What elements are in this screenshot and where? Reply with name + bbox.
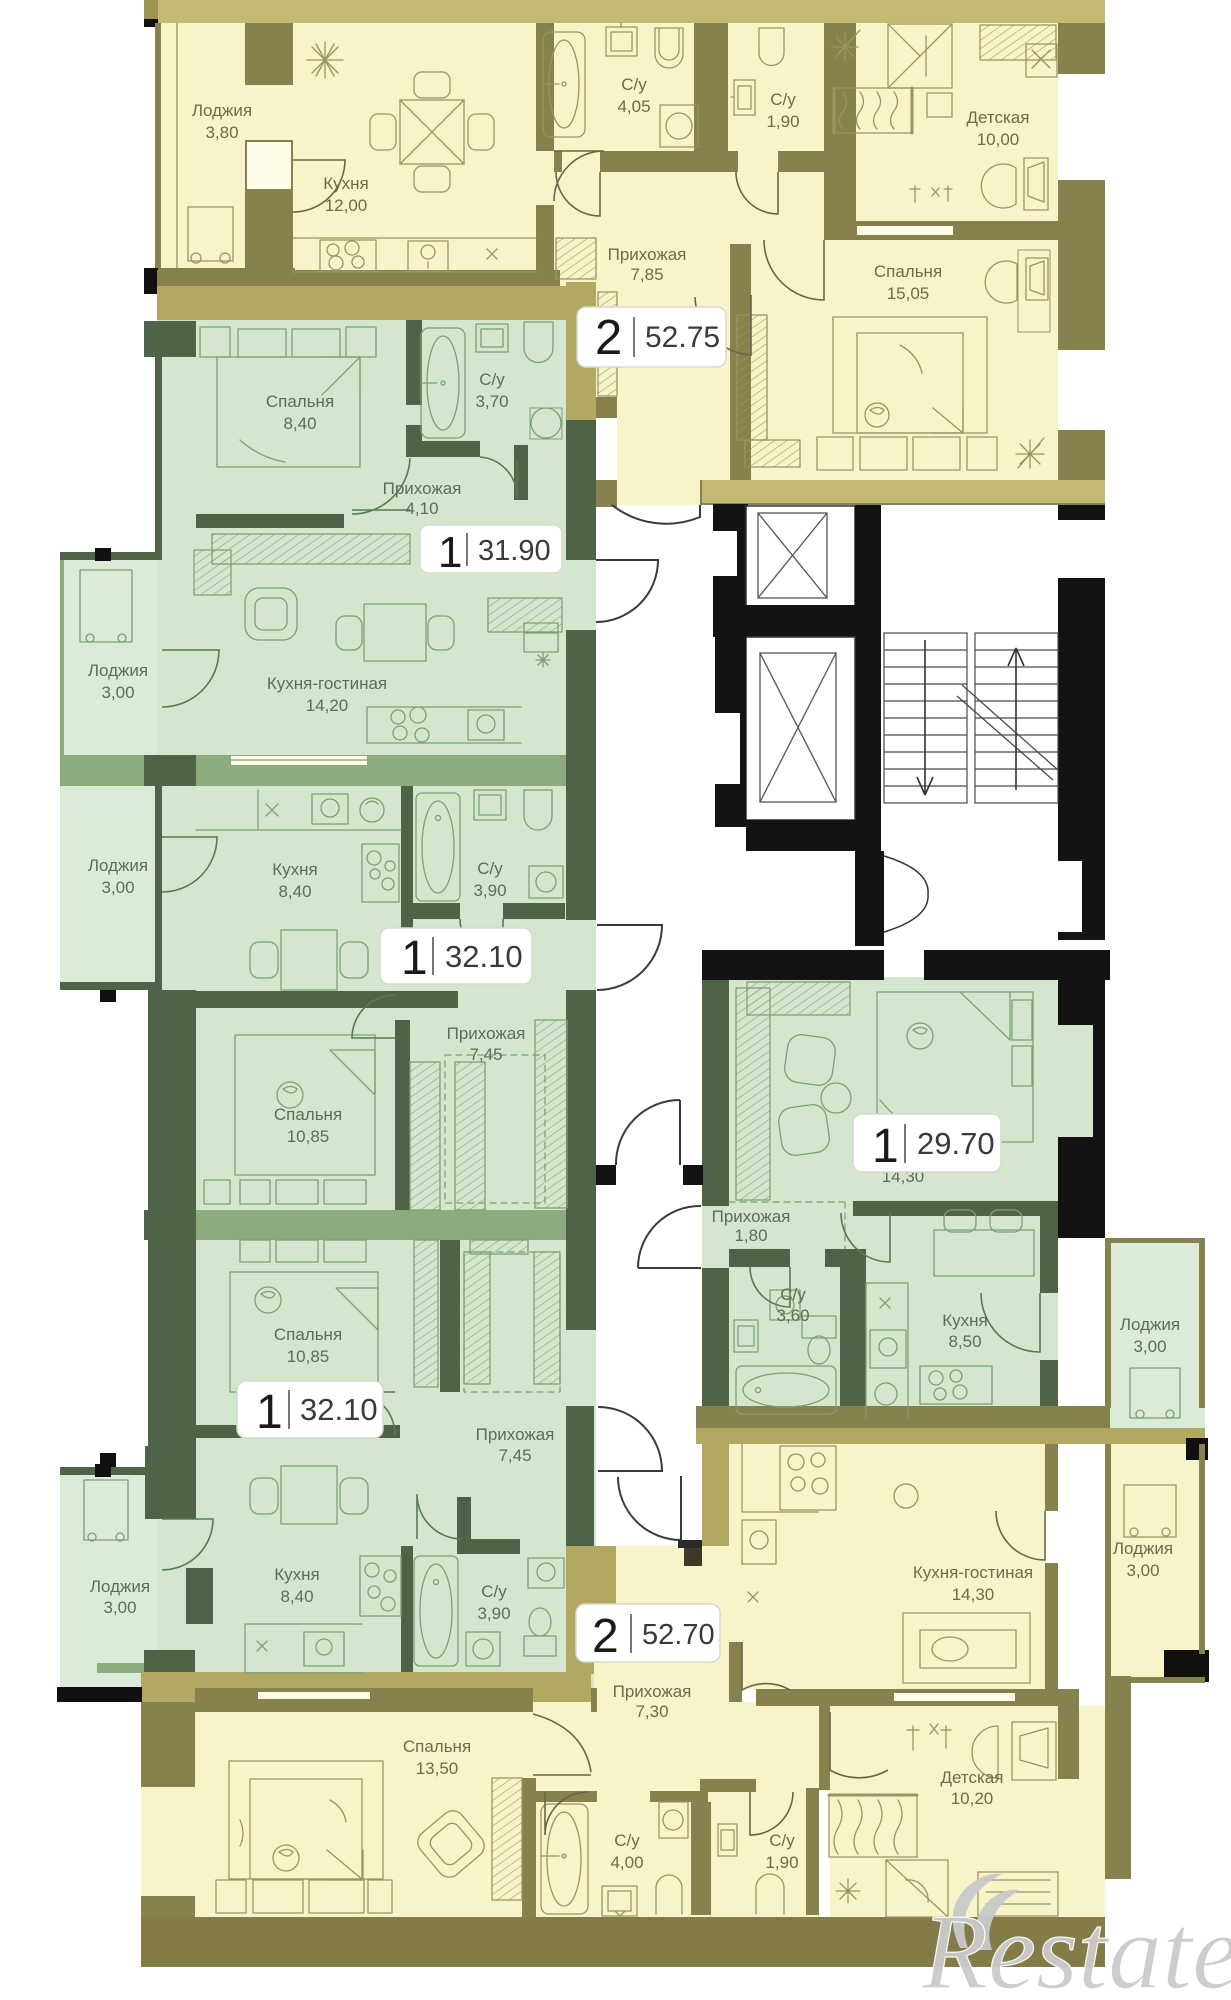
svg-text:Лоджия: Лоджия <box>90 1577 150 1596</box>
svg-text:3,00: 3,00 <box>103 1598 136 1617</box>
svg-text:1: 1 <box>438 528 462 577</box>
svg-text:3,60: 3,60 <box>776 1306 809 1325</box>
svg-text:13,50: 13,50 <box>416 1759 459 1778</box>
svg-text:2: 2 <box>592 1610 619 1663</box>
svg-text:15,05: 15,05 <box>887 284 930 303</box>
svg-text:12,00: 12,00 <box>325 196 368 215</box>
svg-text:С/у: С/у <box>477 859 503 878</box>
svg-text:С/у: С/у <box>780 1285 806 1304</box>
svg-text:10,00: 10,00 <box>977 130 1020 149</box>
svg-text:Лоджия: Лоджия <box>88 661 148 680</box>
svg-text:29.70: 29.70 <box>917 1126 995 1161</box>
svg-text:Детская: Детская <box>967 108 1030 127</box>
svg-text:3,70: 3,70 <box>475 392 508 411</box>
svg-text:Лоджия: Лоджия <box>88 856 148 875</box>
svg-text:1: 1 <box>256 1386 283 1439</box>
svg-text:1,90: 1,90 <box>766 112 799 131</box>
svg-text:Кухня: Кухня <box>323 174 369 193</box>
svg-text:8,40: 8,40 <box>278 882 311 901</box>
svg-text:Прихожая: Прихожая <box>476 1425 555 1444</box>
svg-text:10,20: 10,20 <box>951 1789 994 1808</box>
svg-text:8,40: 8,40 <box>283 414 316 433</box>
svg-text:2: 2 <box>595 311 622 365</box>
svg-text:3,90: 3,90 <box>477 1604 510 1623</box>
svg-text:С/у: С/у <box>769 1831 795 1850</box>
svg-text:10,85: 10,85 <box>287 1347 330 1366</box>
svg-text:31.90: 31.90 <box>478 535 551 567</box>
svg-text:52.75: 52.75 <box>645 321 720 354</box>
svg-text:Прихожая: Прихожая <box>613 1682 692 1701</box>
svg-text:Лоджия: Лоджия <box>192 101 252 120</box>
svg-text:Спальня: Спальня <box>874 262 942 281</box>
svg-text:10,85: 10,85 <box>287 1127 330 1146</box>
svg-text:3,00: 3,00 <box>101 878 134 897</box>
svg-text:Лоджия: Лоджия <box>1120 1315 1180 1334</box>
svg-text:С/у: С/у <box>481 1582 507 1601</box>
svg-text:Прихожая: Прихожая <box>383 479 462 498</box>
svg-text:С/у: С/у <box>621 75 647 94</box>
svg-text:1: 1 <box>401 932 428 985</box>
svg-text:Спальня: Спальня <box>274 1325 342 1344</box>
svg-text:32.10: 32.10 <box>445 939 523 974</box>
svg-text:1: 1 <box>872 1120 899 1173</box>
svg-text:7,45: 7,45 <box>498 1446 531 1465</box>
svg-text:3,00: 3,00 <box>1133 1337 1166 1356</box>
svg-text:Лоджия: Лоджия <box>1113 1539 1173 1558</box>
svg-text:Кухня: Кухня <box>272 860 318 879</box>
svg-text:7,45: 7,45 <box>469 1045 502 1064</box>
svg-text:С/у: С/у <box>614 1831 640 1850</box>
svg-text:8,50: 8,50 <box>948 1332 981 1351</box>
svg-text:С/у: С/у <box>479 370 505 389</box>
svg-text:С/у: С/у <box>770 90 796 109</box>
svg-text:Restate: Restate <box>921 1893 1231 2000</box>
svg-text:4,10: 4,10 <box>405 499 438 518</box>
svg-text:Кухня: Кухня <box>942 1311 988 1330</box>
svg-text:4,00: 4,00 <box>610 1853 643 1872</box>
svg-text:3,00: 3,00 <box>101 683 134 702</box>
svg-text:Спальня: Спальня <box>266 392 334 411</box>
svg-text:1,90: 1,90 <box>765 1853 798 1872</box>
svg-text:7,85: 7,85 <box>630 265 663 284</box>
svg-text:14,30: 14,30 <box>952 1585 995 1604</box>
svg-text:3,90: 3,90 <box>473 881 506 900</box>
svg-text:14,20: 14,20 <box>306 696 349 715</box>
svg-text:32.10: 32.10 <box>300 1392 378 1427</box>
svg-text:7,30: 7,30 <box>635 1702 668 1721</box>
svg-text:52.70: 52.70 <box>642 1619 715 1651</box>
svg-text:Кухня-гостиная: Кухня-гостиная <box>267 674 387 693</box>
svg-text:Прихожая: Прихожая <box>447 1024 526 1043</box>
svg-text:Прихожая: Прихожая <box>608 245 687 264</box>
svg-text:8,40: 8,40 <box>280 1587 313 1606</box>
svg-text:3,00: 3,00 <box>1126 1561 1159 1580</box>
svg-text:1,80: 1,80 <box>734 1226 767 1245</box>
svg-text:Спальня: Спальня <box>274 1105 342 1124</box>
svg-text:4,05: 4,05 <box>617 97 650 116</box>
svg-text:Кухня: Кухня <box>274 1565 320 1584</box>
svg-text:3,80: 3,80 <box>205 123 238 142</box>
svg-text:Прихожая: Прихожая <box>712 1207 791 1226</box>
svg-text:Кухня-гостиная: Кухня-гостиная <box>913 1563 1033 1582</box>
svg-text:Спальня: Спальня <box>403 1737 471 1756</box>
svg-text:Детская: Детская <box>941 1768 1004 1787</box>
